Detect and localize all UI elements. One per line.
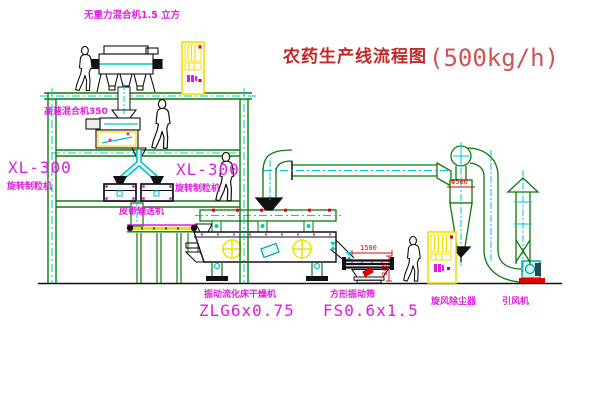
label-dryer-name: 振动流化床干燥机 — [204, 291, 276, 301]
label-gravity-mixer: 无重力混合机1.5 立方 — [84, 11, 180, 21]
title-text: 农药生产线流程图 — [283, 47, 427, 67]
label-dryer-model: ZLG6x0.75 — [199, 301, 295, 320]
label-screen-model: FS0.6x1.5 — [323, 301, 419, 320]
person-ground — [404, 236, 421, 281]
belt-conveyor — [127, 225, 197, 283]
granulator-left — [104, 184, 136, 201]
granulator-right — [141, 184, 173, 201]
dim-screen-height: 345 — [382, 263, 389, 276]
exhaust-pipe — [467, 148, 522, 282]
label-screen-name: 方形振动筛 — [330, 291, 375, 301]
exhaust-stack — [508, 170, 538, 272]
label-belt-conveyor: 皮带输送机 — [119, 208, 164, 218]
person-roof — [76, 46, 92, 90]
label-granulator-middle-name: 旋转制粒机 — [175, 185, 220, 195]
label-granulator-middle-model: XL-300 — [176, 160, 240, 179]
control-cabinet-top — [182, 42, 204, 94]
dim-screen-length: 1500 — [360, 245, 377, 252]
label-cyclone-name: 旋风除尘器 — [431, 298, 476, 308]
y-chute — [113, 150, 164, 184]
label-granulator-left-model: XL-300 — [8, 158, 72, 177]
exhaust-riser-duct — [256, 150, 451, 210]
diagram-title: 农药生产线流程图 (500kg/h) — [283, 47, 559, 70]
person-second-floor — [152, 99, 170, 148]
label-fan-name: 引风机 — [502, 298, 529, 308]
label-granulator-left-name: 旋转制粒机 — [7, 183, 52, 193]
diagram-canvas: 农药生产线流程图 (500kg/h) 无重力混合机1.5 立方 高速混合机350… — [0, 0, 600, 403]
label-high-speed-mixer: 高速混合机350 — [44, 108, 108, 118]
title-capacity: (500kg/h) — [429, 47, 559, 70]
control-cabinet-bottom — [428, 232, 456, 283]
gravity-mixer — [90, 46, 162, 92]
fluid-bed-dryer — [194, 209, 354, 281]
dim-cyclone-diameter: Φ500 — [451, 179, 468, 186]
